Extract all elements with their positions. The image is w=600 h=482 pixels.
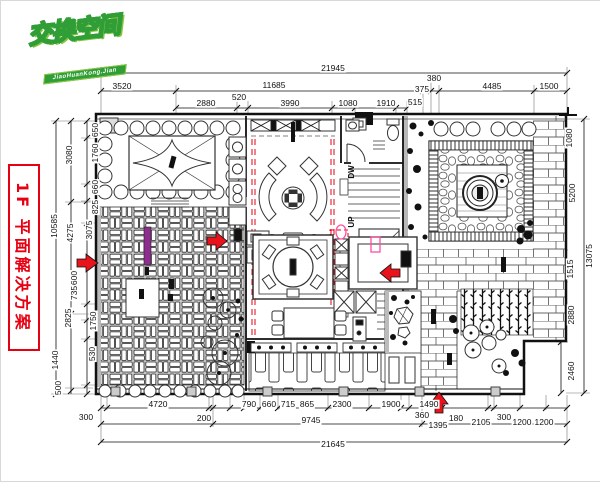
plan-title-text: 1F 平面解决方案 [12, 182, 36, 333]
dim-label: 300 [496, 413, 512, 422]
dim-label: 11685 [261, 81, 286, 90]
dim-label: 3990 [280, 99, 301, 108]
dim-label: 650 [91, 122, 100, 138]
dim-label: 1490 [419, 400, 440, 409]
dim-label: 1750 [89, 311, 98, 332]
dim-label: 2460 [567, 361, 576, 382]
dim-label: 2105 [471, 418, 492, 427]
dim-label: 2300 [332, 400, 353, 409]
dim-label: 1515 [566, 259, 575, 280]
dim-label: 1760 [91, 143, 100, 164]
dim-label: 790 [241, 400, 257, 409]
floor-plan-page: 交换空间 JiaoHuanKong.Jian 1F 平面解决方案 DW UP 2… [0, 0, 600, 482]
dim-label: 10585 [50, 213, 59, 239]
dining-room [253, 235, 333, 299]
dim-label: 660 [261, 400, 277, 409]
dim-label: 530 [88, 346, 97, 362]
dim-label: 1080 [565, 128, 574, 149]
dim-label: 520 [231, 93, 247, 102]
dim-label: 2825 [64, 308, 73, 329]
dim-label: 1440 [51, 350, 60, 371]
dim-label: 825 [91, 199, 100, 215]
stair-label-down: DW [348, 165, 356, 178]
stair-label-up: UP [348, 216, 356, 227]
dim-label: 3075 [85, 220, 94, 241]
dim-label: 865 [299, 400, 315, 409]
dim-label: 2880 [567, 305, 576, 326]
dim-label: 180 [448, 414, 464, 423]
dim-label: 1900 [381, 400, 402, 409]
dim-label: 4485 [482, 82, 503, 91]
dim-label: 13075 [585, 243, 594, 269]
dim-label: 3520 [112, 82, 133, 91]
brand-logo: 交换空间 JiaoHuanKong.Jian [26, 2, 144, 73]
dim-label: 1200 [534, 418, 555, 427]
dim-label: 600 [70, 270, 79, 286]
dim-label: 360 [414, 411, 430, 420]
dim-label: 735 [70, 285, 79, 301]
dim-label: 1395 [428, 421, 449, 430]
dim-label: 1500 [539, 82, 560, 91]
dim-label: 21945 [320, 64, 346, 73]
dim-label: 500 [54, 380, 63, 396]
dim-label: 200 [196, 414, 212, 423]
dim-label: 1080 [338, 99, 359, 108]
dim-label: 1200 [512, 418, 533, 427]
dim-label: 21645 [320, 440, 346, 449]
dim-label: 515 [407, 98, 423, 107]
dim-label: 3080 [65, 145, 74, 166]
dim-label: 300 [78, 413, 94, 422]
dim-label: 380 [426, 74, 442, 83]
dim-label: 4275 [66, 223, 75, 244]
dim-label: 375 [414, 85, 430, 94]
dim-label: 5200 [568, 183, 577, 204]
dim-label: 2880 [196, 99, 217, 108]
dim-label: 4720 [148, 400, 169, 409]
dim-label: 715 [280, 400, 296, 409]
dim-label: 1910 [376, 99, 397, 108]
dim-label: 660 [91, 179, 100, 195]
plan-title-box: 1F 平面解决方案 [8, 164, 40, 351]
dim-label: 9745 [301, 416, 322, 425]
